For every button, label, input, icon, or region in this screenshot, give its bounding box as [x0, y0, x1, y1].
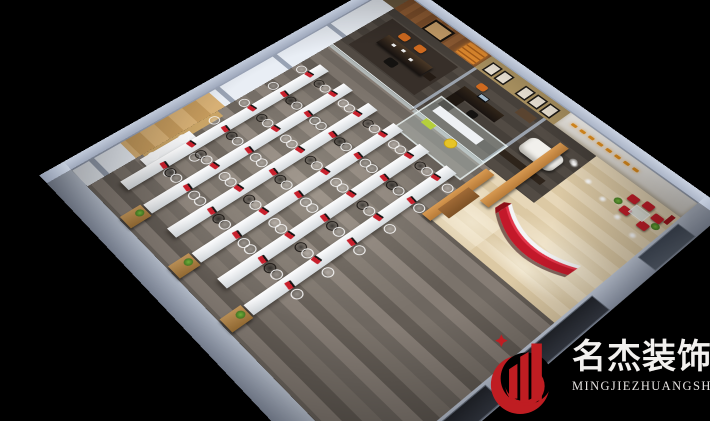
- building-bar: [509, 364, 517, 399]
- building-bar: [520, 352, 528, 402]
- brand-logo-icon: [488, 333, 558, 414]
- star-icon: [495, 334, 508, 347]
- brand-logo-text: 名杰装饰 MINGJIEZHUANGSHI: [572, 333, 710, 394]
- brand-name-chinese: 名杰装饰: [572, 340, 710, 374]
- red-laptop: [430, 173, 441, 181]
- brand-name-english: MINGJIEZHUANGSHI: [572, 379, 710, 394]
- render-canvas: 名杰装饰 MINGJIEZHUANGSHI: [0, 0, 710, 421]
- brand-logo: 名杰装饰 MINGJIEZHUANGSHI: [488, 333, 710, 414]
- red-laptop: [403, 151, 414, 159]
- building-bar: [531, 343, 541, 400]
